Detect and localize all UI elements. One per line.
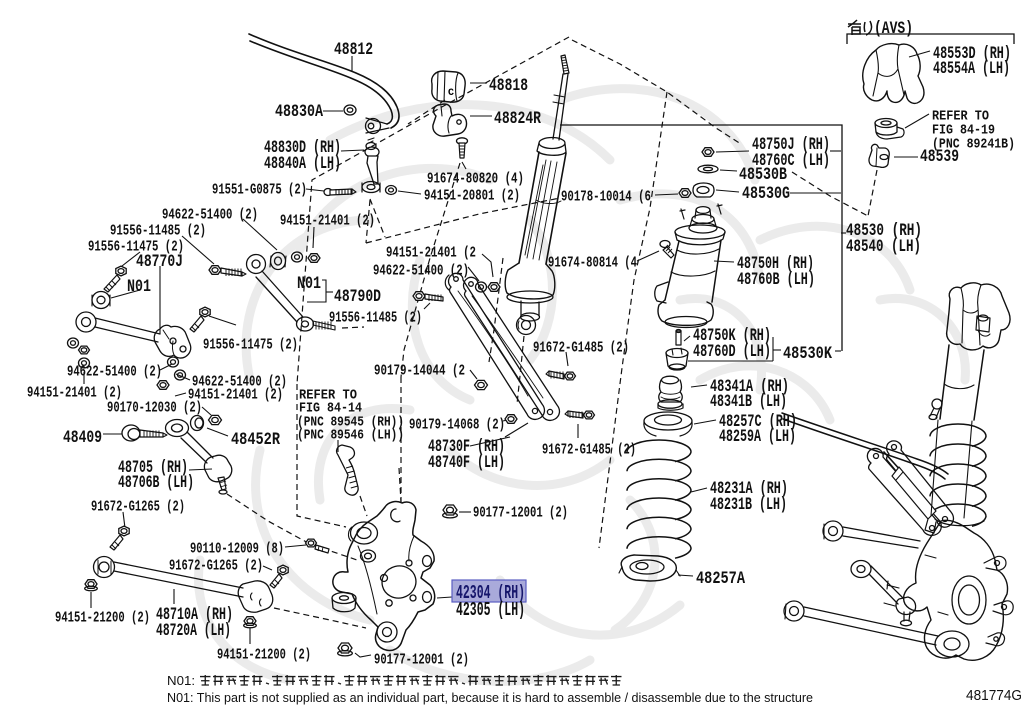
svg-text:91672-G1265 (2): 91672-G1265 (2) bbox=[169, 558, 263, 574]
svg-text:N01: N01 bbox=[127, 277, 151, 297]
svg-text:90179-14044 (2: 90179-14044 (2 bbox=[374, 363, 465, 379]
svg-text:94622-51400 (2): 94622-51400 (2) bbox=[162, 207, 258, 223]
svg-text:90177-12001 (2): 90177-12001 (2) bbox=[374, 652, 469, 668]
svg-text:48452R: 48452R bbox=[231, 430, 280, 450]
svg-text:(PNC 89546 (LH)): (PNC 89546 (LH)) bbox=[297, 428, 404, 444]
svg-text:94622-51400 (2): 94622-51400 (2) bbox=[373, 263, 469, 279]
svg-text:91556-11485 (2): 91556-11485 (2) bbox=[110, 223, 206, 239]
svg-text:94151-21200 (2): 94151-21200 (2) bbox=[55, 610, 150, 626]
svg-text:48539: 48539 bbox=[920, 147, 959, 167]
svg-text:94151-21401 (2): 94151-21401 (2) bbox=[27, 385, 122, 401]
svg-text:48740F (LH): 48740F (LH) bbox=[428, 453, 505, 473]
svg-text:48540 (LH): 48540 (LH) bbox=[846, 237, 921, 257]
svg-text:48530G: 48530G bbox=[742, 184, 790, 204]
svg-text:48530K: 48530K bbox=[783, 344, 832, 364]
svg-text:48840A (LH): 48840A (LH) bbox=[264, 154, 341, 174]
svg-text:90178-10014 (6: 90178-10014 (6 bbox=[561, 189, 651, 205]
svg-text:91551-G0875 (2): 91551-G0875 (2) bbox=[212, 182, 307, 198]
svg-text:48409: 48409 bbox=[63, 428, 102, 448]
svg-text:48257A: 48257A bbox=[696, 569, 745, 589]
svg-text:91672-G1485 (2): 91672-G1485 (2) bbox=[542, 442, 636, 458]
svg-text:481774G: 481774G bbox=[966, 687, 1022, 704]
svg-text:94151-21401 (2): 94151-21401 (2) bbox=[188, 387, 283, 403]
svg-text:48231B (LH): 48231B (LH) bbox=[710, 495, 787, 515]
svg-text:94151-21401 (2): 94151-21401 (2) bbox=[280, 213, 375, 229]
svg-text:48720A (LH): 48720A (LH) bbox=[156, 621, 231, 641]
svg-text:N01: N01 bbox=[297, 274, 321, 294]
svg-text:91672-G1265 (2): 91672-G1265 (2) bbox=[91, 499, 185, 515]
svg-text:42305 (LH): 42305 (LH) bbox=[456, 599, 525, 621]
svg-text:94151-21401 (2: 94151-21401 (2 bbox=[386, 245, 476, 261]
svg-text:94622-51400 (2): 94622-51400 (2) bbox=[67, 364, 162, 380]
svg-text:48760D (LH): 48760D (LH) bbox=[693, 342, 771, 362]
svg-text:48824R: 48824R bbox=[494, 109, 541, 129]
svg-text:48530B: 48530B bbox=[739, 165, 787, 185]
svg-text:48706B (LH): 48706B (LH) bbox=[118, 473, 194, 493]
svg-text:91674-80814 (4: 91674-80814 (4 bbox=[548, 255, 637, 271]
svg-text:94151-20801 (2): 94151-20801 (2) bbox=[424, 188, 520, 204]
svg-text:90110-12009 (8): 90110-12009 (8) bbox=[190, 541, 284, 557]
svg-text:48770J: 48770J bbox=[136, 252, 183, 272]
svg-text:90177-12001 (2): 90177-12001 (2) bbox=[473, 505, 568, 521]
svg-text:48830A: 48830A bbox=[275, 102, 323, 122]
svg-text:48259A (LH): 48259A (LH) bbox=[719, 427, 796, 447]
svg-text:C: C bbox=[448, 88, 454, 99]
svg-text:N01: This part is not supplied: N01: This part is not supplied as an ind… bbox=[167, 690, 813, 705]
svg-text:48760B (LH): 48760B (LH) bbox=[737, 270, 815, 290]
svg-text:91556-11475 (2): 91556-11475 (2) bbox=[203, 337, 298, 353]
svg-text:48818: 48818 bbox=[489, 76, 528, 96]
svg-text:91672-G1485 (2): 91672-G1485 (2) bbox=[533, 340, 629, 356]
svg-text:90170-12030 (2): 90170-12030 (2) bbox=[107, 400, 202, 416]
svg-text:(AVS): (AVS) bbox=[874, 19, 913, 39]
svg-text:90179-14068 (2): 90179-14068 (2) bbox=[409, 417, 505, 433]
svg-text:48812: 48812 bbox=[334, 40, 373, 60]
svg-text:48554A (LH): 48554A (LH) bbox=[933, 59, 1010, 79]
svg-text:91556-11485 (2): 91556-11485 (2) bbox=[329, 310, 422, 326]
svg-text:48790D: 48790D bbox=[334, 287, 381, 307]
svg-text:48341B (LH): 48341B (LH) bbox=[710, 392, 787, 412]
svg-text:94151-21200 (2): 94151-21200 (2) bbox=[217, 647, 311, 663]
svg-text:91674-80820 (4): 91674-80820 (4) bbox=[427, 171, 524, 187]
svg-text:N01:: N01: bbox=[167, 674, 195, 688]
